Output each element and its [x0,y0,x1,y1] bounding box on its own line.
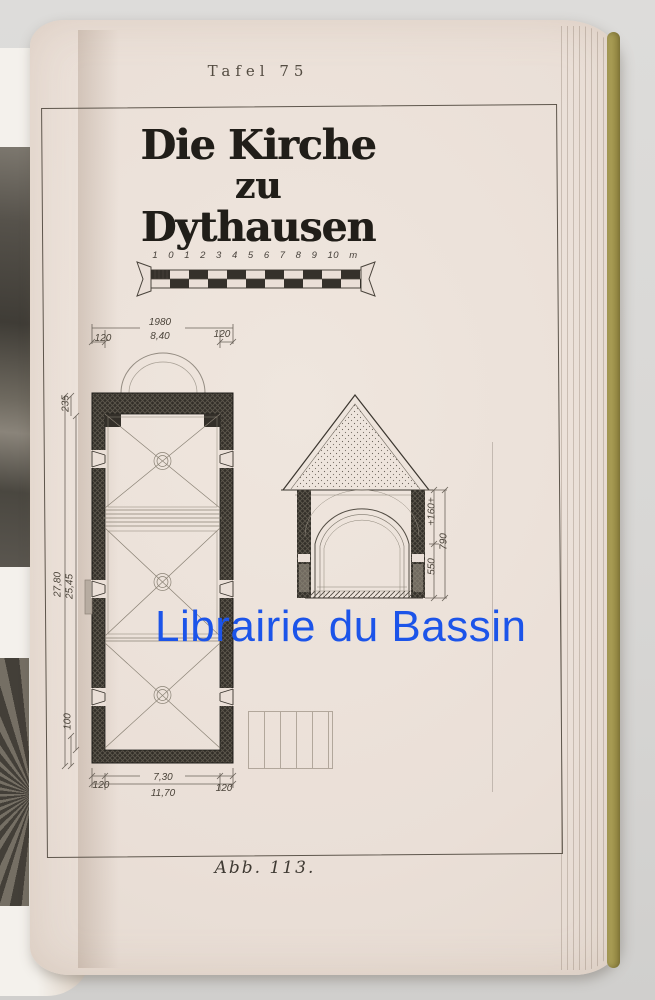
previous-page-photo-top [0,147,31,567]
dim-top-margin-right: 120 [202,329,242,340]
dim-bottom-margin-left: 120 [81,780,121,791]
previous-page-photo-bottom [0,658,29,906]
title-line-1: Die Kirche [118,124,398,167]
dim-side-lower: 100 [63,702,74,742]
book-cover-edge [607,32,620,968]
dim-section-lower: 550 [427,547,438,587]
plate-number: Tafel 75 [178,62,338,80]
dim-section-upper: +160+ [427,492,438,532]
dim-section-total: 790 [439,522,450,562]
title-line-3: Dythausen [118,206,398,249]
floor-plan [45,318,275,804]
dim-bottom-width-total: 11,70 [123,788,203,799]
plank-detail [248,711,333,769]
dim-bottom-margin-right: 120 [204,783,244,794]
book-photo: Tafel 75 Die Kirche zu Dythausen 1 0 1 2… [0,0,655,1000]
dim-side-upper: 235 [61,384,72,424]
watermark-text: Librairie du Bassin [155,602,595,652]
title-line-2: zu [118,167,398,205]
dim-side-total: 27,80 [53,565,64,605]
scale-bar [133,250,381,300]
dim-top-width-outer: 1980 [120,317,200,328]
dim-top-width-inner: 8,40 [120,331,200,342]
figure-caption: Abb. 113. [195,858,335,878]
dim-bottom-width-inner: 7,30 [123,772,203,783]
dim-top-margin-left: 120 [83,333,123,344]
dim-side-inner: 25,45 [65,567,76,607]
plate-title: Die Kirche zu Dythausen [118,124,398,249]
page-stack-edges [556,26,610,970]
